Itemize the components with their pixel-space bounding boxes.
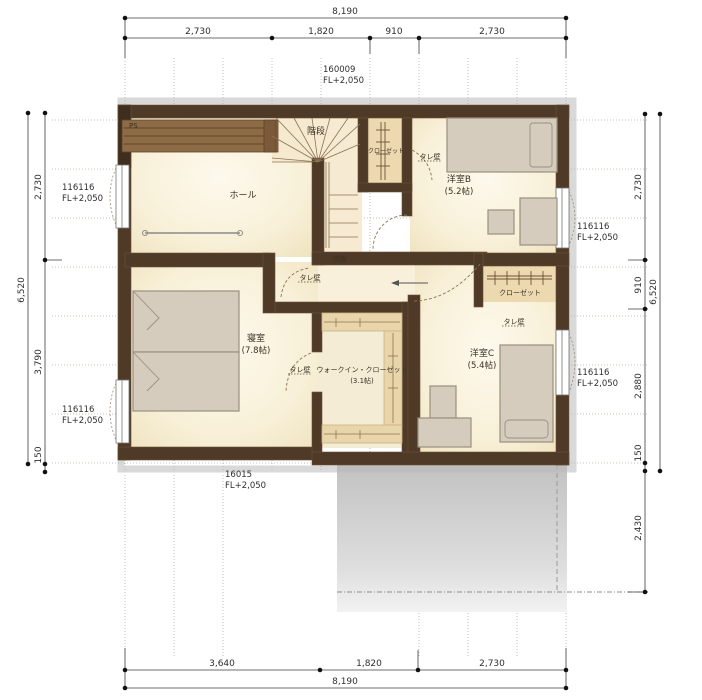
- window-left-top: [116, 165, 129, 228]
- balcony-roof-below: [337, 465, 648, 612]
- dim-bottom-total: 8,190: [332, 677, 358, 687]
- code-right-top-2: FL+2,050: [577, 233, 618, 243]
- window-right-top: [556, 188, 569, 248]
- dim-top-total: 8,190: [332, 7, 358, 17]
- room-size-bedroom-c: (5.4帖): [468, 360, 497, 371]
- code-left-bottom-1: 116116: [62, 405, 94, 415]
- room-label-ps: PS: [129, 122, 138, 130]
- dim-bottom-s2: 1,820: [356, 659, 382, 669]
- dim-right-s1: 2,730: [634, 174, 644, 200]
- dim-right-s5: 2,430: [634, 515, 644, 541]
- room-label-closet-c: クローゼット: [499, 288, 541, 297]
- code-bottom-1: 16015: [225, 470, 252, 480]
- tare-kabe-label-wic: タレ壁: [290, 365, 311, 374]
- code-right-bottom-2: FL+2,050: [577, 379, 618, 389]
- code-bottom-2: FL+2,050: [225, 481, 266, 491]
- dim-right-s4: 150: [634, 444, 644, 461]
- room-size-master: (7.8帖): [242, 345, 271, 356]
- dim-top-s1: 2,730: [185, 27, 211, 37]
- hall-counter: [122, 120, 278, 152]
- dim-top-s3: 910: [385, 27, 402, 37]
- room-size-wic: (3.1帖): [350, 376, 374, 385]
- dim-bottom-s1: 3,640: [209, 659, 235, 669]
- code-left-top-2: FL+2,050: [62, 194, 103, 204]
- room-label-bedroom-b: 洋室B: [447, 173, 471, 185]
- bedroom-c-chest: [418, 418, 471, 447]
- code-top-2: FL+2,050: [323, 76, 364, 86]
- dim-left-s1: 2,730: [34, 174, 44, 200]
- dim-top-s2: 1,820: [308, 27, 334, 37]
- room-label-master: 寝室: [247, 332, 265, 344]
- room-label-bedroom-c: 洋室C: [470, 347, 494, 359]
- room-label-closet-b: クローゼット: [368, 147, 404, 155]
- dim-left-s3: 150: [34, 446, 44, 463]
- room-size-bedroom-b: (5.2帖): [445, 186, 474, 197]
- room-label-hall: ホール: [229, 190, 256, 201]
- bedroom-c-bed: [500, 345, 553, 442]
- master-bed-1: [133, 291, 239, 352]
- bedroom-c-desk: [430, 386, 456, 418]
- room-label-stairs: 階段: [307, 125, 325, 137]
- dim-right-s2: 910: [634, 276, 644, 293]
- window-left-bottom: [116, 380, 129, 443]
- dim-left-s2: 3,790: [34, 349, 44, 375]
- code-left-top-1: 116116: [62, 183, 94, 193]
- code-top-1: 160009: [323, 65, 355, 75]
- floor-plan-page: 8,190 2,730 1,820 910 2,730 6,520 2,730 …: [0, 0, 702, 700]
- bedroom-b-desk: [520, 198, 557, 245]
- dim-right-s3: 2,880: [634, 373, 644, 399]
- code-left-bottom-2: FL+2,050: [62, 416, 103, 426]
- bedroom-b-door-arc: [373, 215, 407, 249]
- tare-kabe-label-c: タレ壁: [504, 317, 525, 326]
- window-right-bottom: [556, 330, 569, 395]
- master-bed-2: [133, 352, 239, 411]
- floor-plan-drawing: 8,190 2,730 1,820 910 2,730 6,520 2,730 …: [0, 0, 702, 700]
- void-label: 吹抜: [333, 254, 347, 263]
- dim-top-s4: 2,730: [479, 27, 505, 37]
- dim-left-total: 6,520: [17, 277, 27, 303]
- bedroom-b-bed: [447, 118, 557, 172]
- room-label-wic: ウォークイン・クローゼット: [317, 365, 408, 374]
- tare-kabe-label-corridor: タレ壁: [300, 273, 321, 282]
- tare-kabe-label-b: タレ壁: [420, 152, 441, 161]
- code-right-bottom-1: 116116: [577, 368, 609, 378]
- dim-right-total: 6,520: [649, 279, 659, 305]
- dim-bottom-s3: 2,730: [479, 659, 505, 669]
- code-right-top-1: 116116: [577, 222, 609, 232]
- bedroom-b-table: [488, 210, 514, 234]
